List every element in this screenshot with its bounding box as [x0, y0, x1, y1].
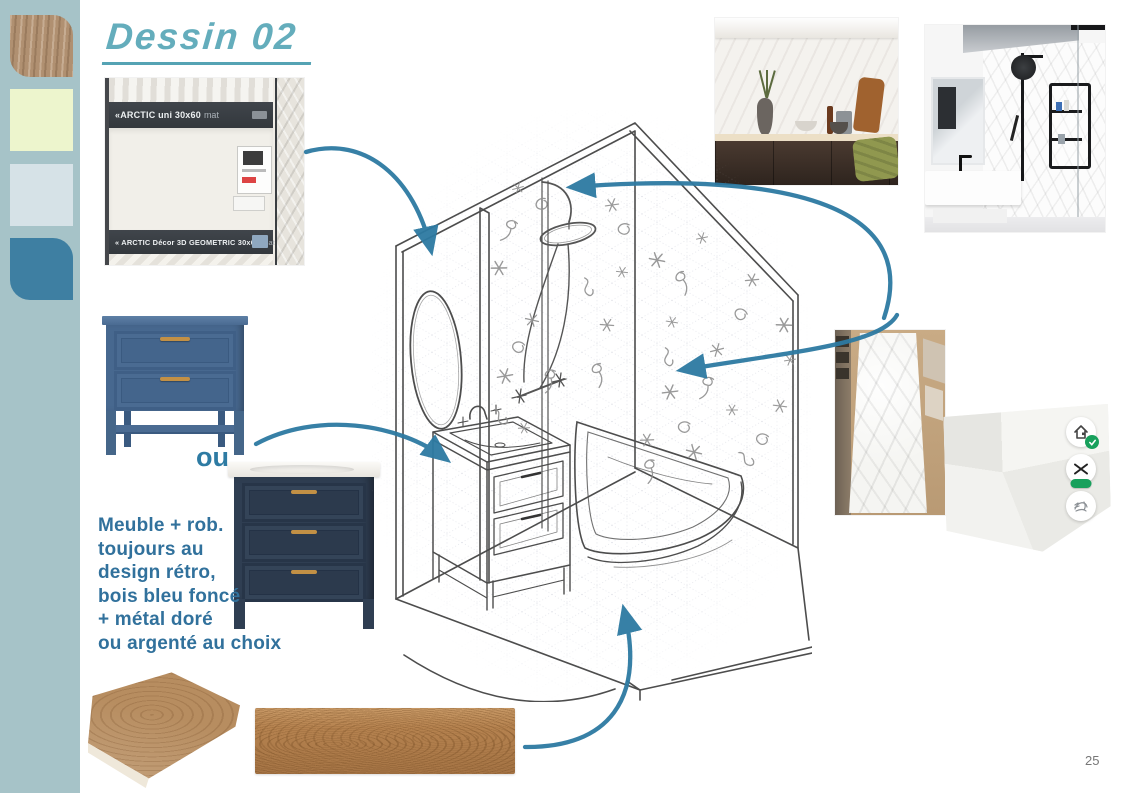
shelf-box: [836, 352, 849, 363]
cabinet1-leg: [234, 411, 244, 455]
vanity-option-1-photo: [100, 316, 250, 455]
green-pill-badge: [1071, 479, 1092, 488]
cabinet1-body: [106, 325, 244, 411]
tile-label-top: «ARCTIC uni 30x60: [115, 110, 201, 120]
black-shelf-rack: [1049, 83, 1091, 169]
price-tag-small: [233, 196, 265, 211]
green-towel: [852, 136, 898, 182]
swatch-wood-texture: [10, 15, 73, 77]
wood-tile-surface: [88, 670, 240, 788]
bottle: [1058, 134, 1065, 144]
sink-recess: [250, 465, 354, 474]
glass-edge: [1077, 25, 1079, 232]
shower-head: [1011, 55, 1036, 80]
tile-display-side-texture: [275, 78, 304, 265]
note-line: + métal doré: [98, 608, 281, 632]
white-3d-slab: [849, 333, 927, 513]
gold-handle: [160, 377, 190, 381]
gold-handle: [291, 530, 317, 534]
tile-display-photo: «ARCTIC uni 30x60 mat « ARCTIC Décor 3D …: [105, 78, 304, 265]
note-line: Meuble + rob.: [98, 514, 281, 538]
swatch-steel-blue: [10, 238, 73, 300]
annotation-note: Meuble + rob. toujours au design rétro, …: [98, 514, 281, 655]
note-line: toujours au: [98, 538, 281, 562]
panel-feature-icons: [1063, 417, 1099, 521]
drawer-panel: [121, 338, 229, 363]
brand-logo-icon: [252, 111, 267, 119]
tile-label-band-top: «ARCTIC uni 30x60 mat: [109, 102, 273, 128]
tile-sample: [923, 338, 945, 383]
tile-slab-photo: [835, 330, 945, 515]
cabinet1-leg: [106, 411, 116, 455]
note-line: ou argenté au choix: [98, 632, 281, 656]
cabinet1-drawer: [114, 331, 236, 370]
iso-grid-paper: [372, 110, 812, 702]
white-vanity: [925, 171, 1021, 205]
swatch-light-blue: [10, 164, 73, 226]
vanity-drawer: [933, 209, 1007, 223]
palette-strip: [0, 0, 80, 793]
gold-handle: [160, 337, 190, 341]
bottle: [1056, 102, 1062, 111]
bathroom-sketch: [372, 110, 812, 702]
tile-sample: [925, 385, 943, 421]
mirror: [931, 77, 985, 165]
tile-label-bottom: « ARCTIC Décor 3D GEOMETRIC 30x60: [115, 238, 259, 247]
crossed-tools-icon: [1066, 454, 1096, 484]
cabinet1-shelf: [106, 425, 244, 432]
tile-label-band-bottom: « ARCTIC Décor 3D GEOMETRIC 30x60 mat »: [109, 230, 273, 254]
brand-logo2-icon: [252, 235, 268, 248]
bottle: [1064, 100, 1069, 111]
page-title: Dessin 02: [102, 16, 315, 65]
cabinet1-drawer: [114, 371, 236, 410]
gold-handle: [291, 570, 317, 574]
note-line: design rétro,: [98, 561, 281, 585]
drawer-panel: [121, 378, 229, 403]
shelf-box: [836, 336, 849, 347]
tile-label-top-suffix: mat: [204, 110, 219, 120]
check-badge: [1085, 435, 1099, 449]
black-faucet-spout: [959, 155, 972, 158]
wood-tile-photo: [88, 670, 240, 788]
cabinet2-sink-top: [228, 462, 380, 477]
wood-plank-photo: [255, 708, 515, 774]
cutting-board: [853, 77, 885, 134]
price-tag: [237, 146, 272, 194]
shelf-box: [836, 368, 849, 379]
mirror-reflection: [938, 87, 956, 129]
tile-wave-texture: [109, 78, 273, 102]
tile-3d-texture: [109, 254, 273, 265]
sketch-3d-icon: [1066, 491, 1096, 521]
gold-handle: [291, 490, 317, 494]
page-number: 25: [1085, 753, 1099, 768]
note-line: bois bleu foncé: [98, 585, 281, 609]
swatch-pale-yellow: [10, 89, 73, 151]
shower-room-photo: [925, 25, 1105, 232]
cabinet1-top: [102, 316, 248, 325]
photo-ceiling: [715, 18, 898, 38]
moodboard-page: Dessin 02 «ARCTIC uni 30x60 mat « ARCTIC…: [0, 0, 1121, 793]
option-separator: ou: [196, 442, 229, 473]
house-check-icon: [1066, 417, 1096, 447]
